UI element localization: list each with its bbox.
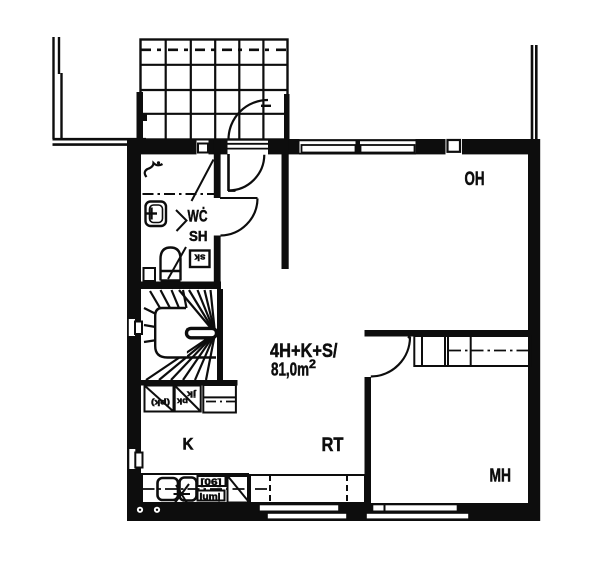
svg-text:[06]: [06] xyxy=(201,477,222,487)
svg-text:pk: pk xyxy=(176,397,188,406)
svg-text:lum|: lum| xyxy=(200,492,221,502)
svg-text:MH: MH xyxy=(490,464,512,485)
svg-text:81,0m: 81,0m xyxy=(271,360,309,380)
svg-text:(pk): (pk) xyxy=(151,398,170,407)
svg-text:SH: SH xyxy=(189,229,208,245)
svg-text:K: K xyxy=(183,435,194,453)
svg-text:OH: OH xyxy=(465,169,485,190)
svg-text:sk: sk xyxy=(193,253,205,263)
svg-text:2: 2 xyxy=(309,357,316,371)
svg-text:WĊ: WĊ xyxy=(188,207,208,226)
svg-text:RT: RT xyxy=(322,435,344,456)
svg-text:4H+K+S/: 4H+K+S/ xyxy=(270,340,338,362)
